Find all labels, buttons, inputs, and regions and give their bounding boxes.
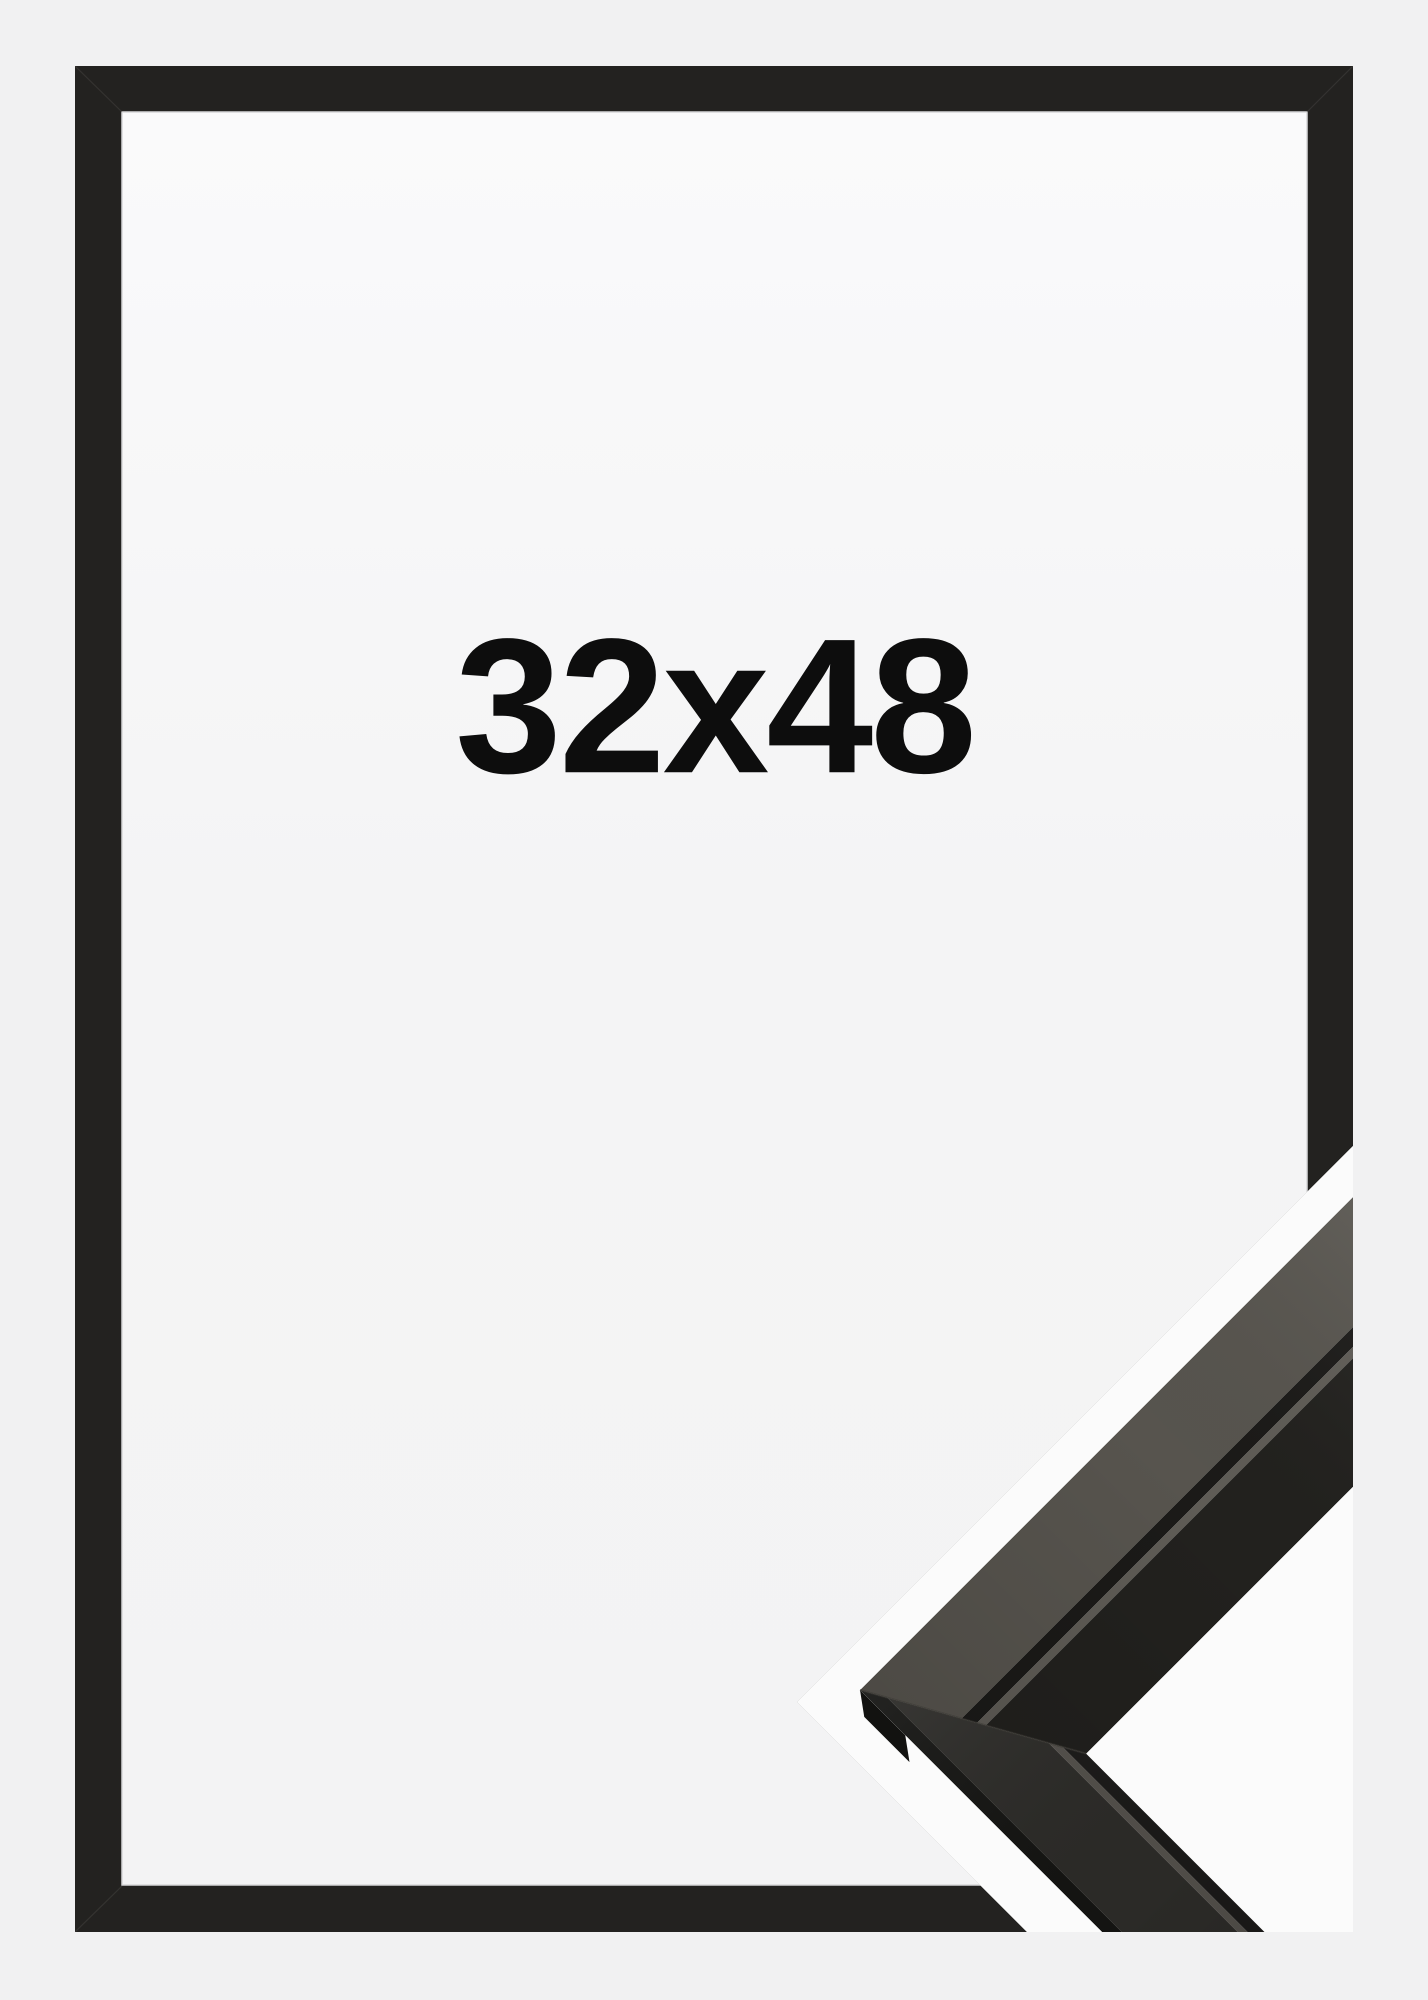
frame-product-graphic [0,0,1428,2000]
product-image: 32x48 [0,0,1428,2000]
size-label: 32x48 [122,610,1307,802]
